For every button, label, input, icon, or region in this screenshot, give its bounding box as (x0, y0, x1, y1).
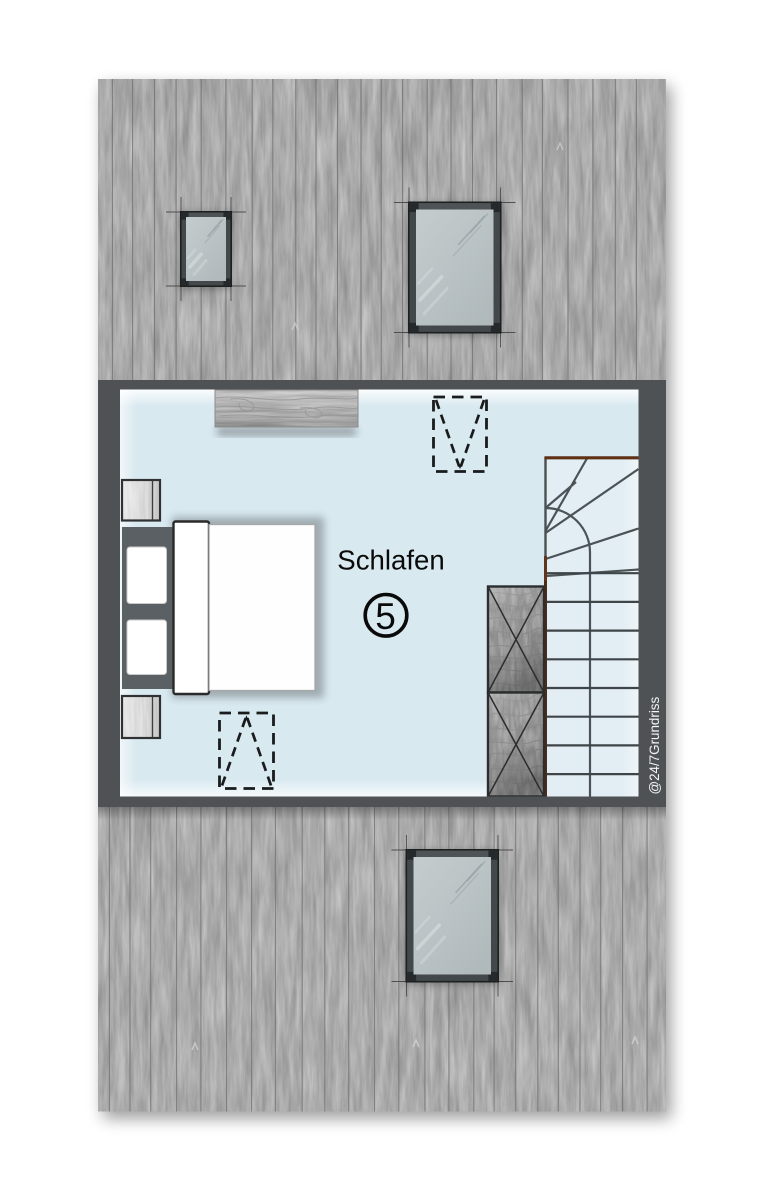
svg-text:Schlafen: Schlafen (337, 545, 444, 576)
svg-text:5: 5 (375, 596, 396, 637)
svg-text:@24/7Grundriss: @24/7Grundriss (647, 696, 662, 794)
